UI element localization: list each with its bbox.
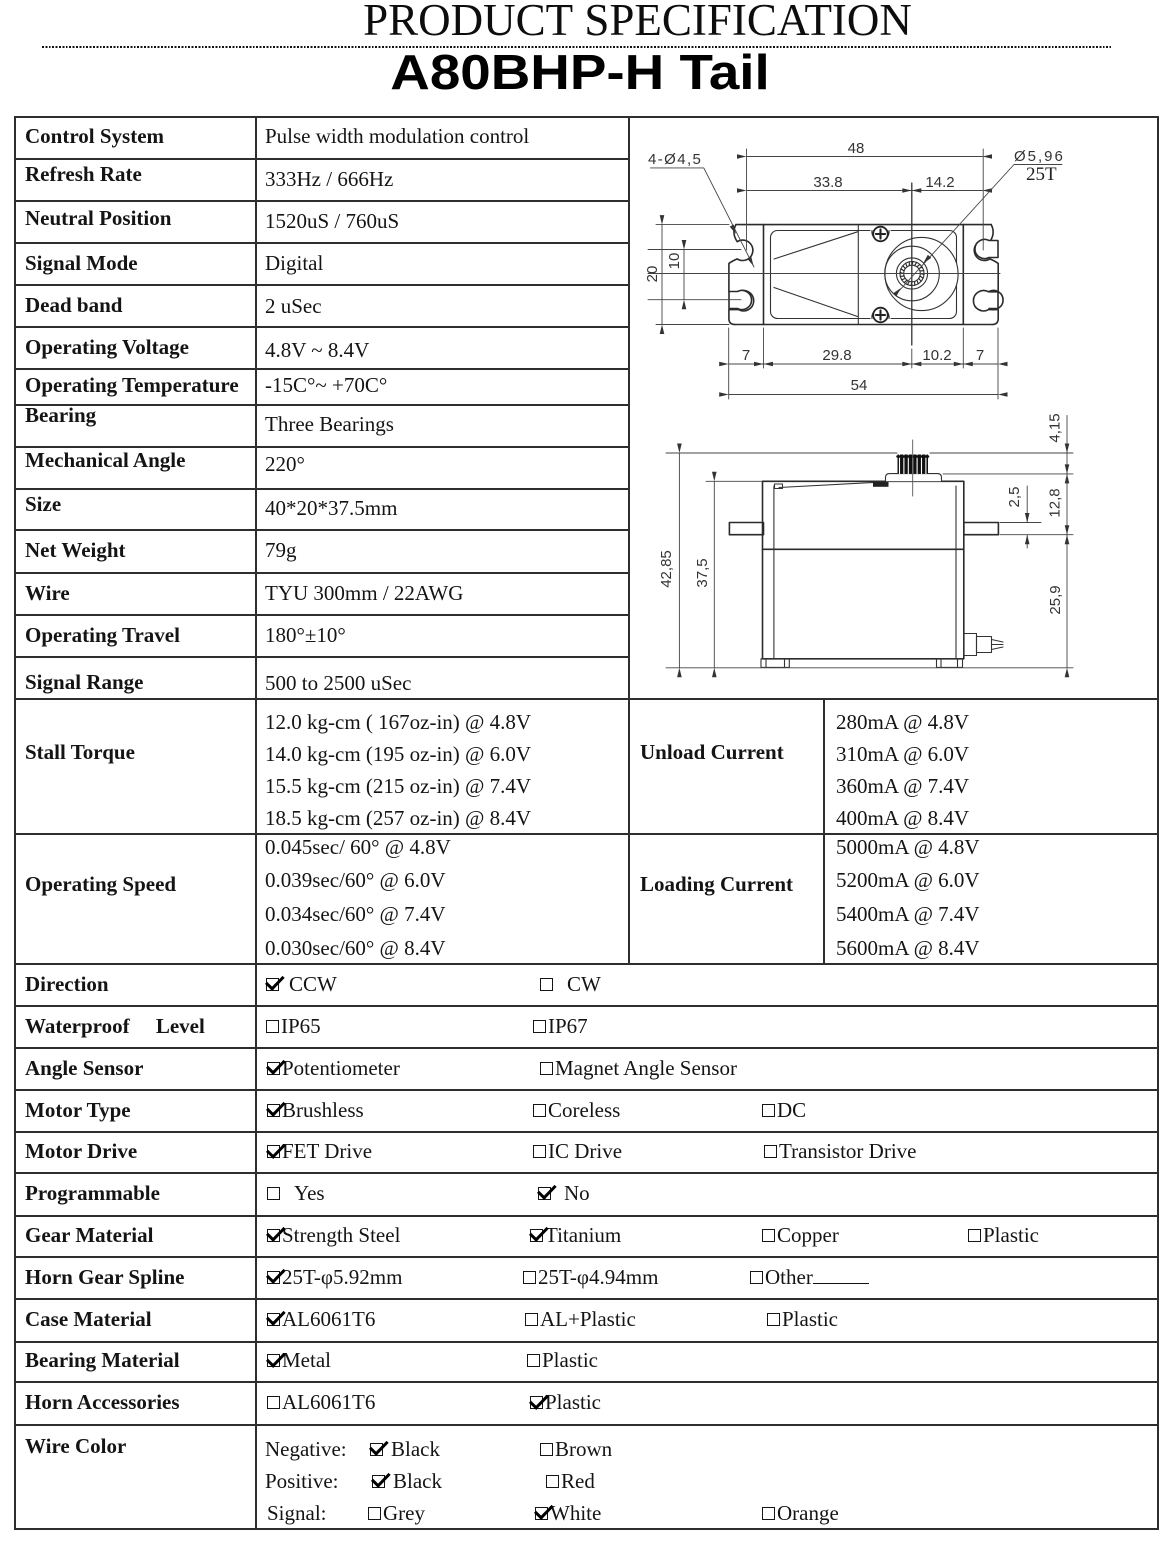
svg-text:54: 54 — [851, 377, 868, 394]
svg-text:14.2: 14.2 — [925, 174, 954, 191]
svg-text:7: 7 — [976, 347, 984, 364]
svg-text:4,15: 4,15 — [1047, 413, 1064, 442]
svg-text:33.8: 33.8 — [813, 174, 842, 191]
svg-text:42,85: 42,85 — [658, 550, 675, 588]
svg-text:20: 20 — [644, 266, 661, 283]
svg-text:10: 10 — [666, 253, 683, 270]
svg-text:25T: 25T — [1026, 164, 1057, 185]
svg-text:Ø5,96: Ø5,96 — [1014, 148, 1065, 165]
svg-text:29.8: 29.8 — [822, 347, 851, 364]
svg-text:4-Ø4,5: 4-Ø4,5 — [648, 151, 702, 168]
svg-text:12,8: 12,8 — [1047, 488, 1064, 517]
svg-text:2,5: 2,5 — [1006, 487, 1023, 508]
svg-text:7: 7 — [742, 347, 750, 364]
svg-text:48: 48 — [848, 140, 865, 157]
svg-text:10.2: 10.2 — [922, 347, 951, 364]
svg-text:37,5: 37,5 — [694, 558, 711, 587]
svg-text:25,9: 25,9 — [1047, 585, 1064, 614]
